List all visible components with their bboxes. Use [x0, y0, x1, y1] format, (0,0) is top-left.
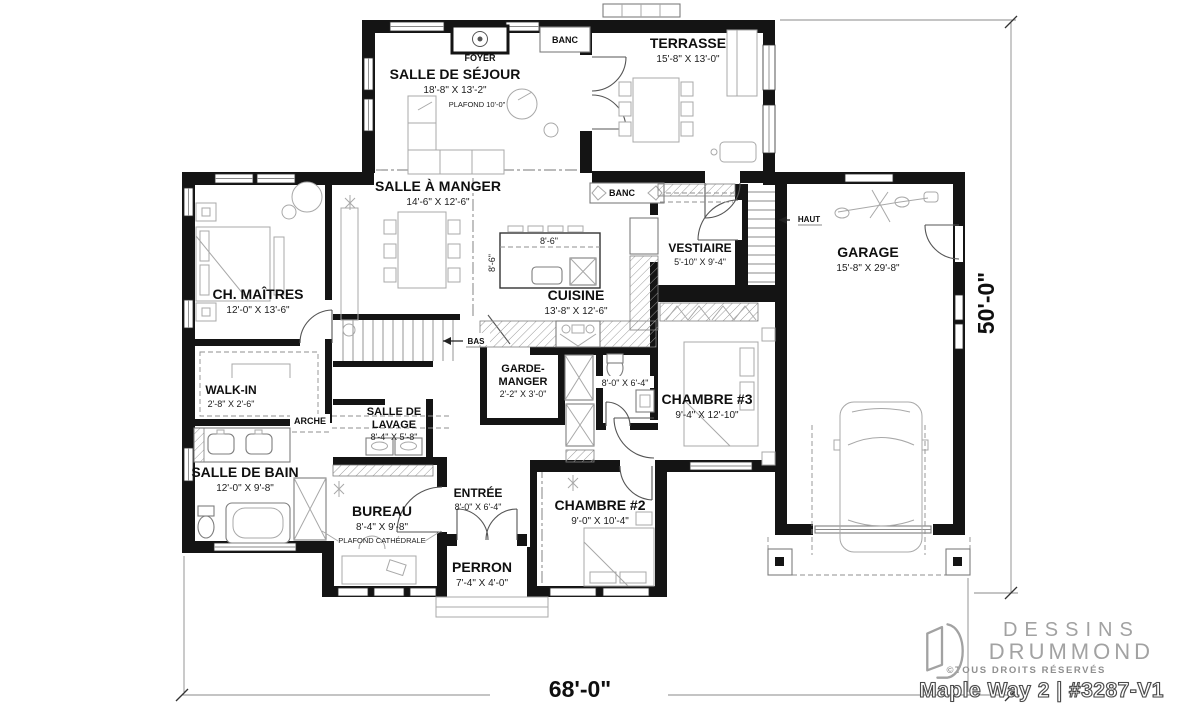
- island-width-label: 8'-6": [540, 236, 558, 246]
- room-label-perron: PERRON: [452, 559, 512, 575]
- room-label-chambre3: CHAMBRE #3: [661, 391, 752, 407]
- chambre2-furniture: [568, 475, 654, 586]
- room-dims-entree: 8'-0" X 6'-4": [455, 502, 502, 512]
- room-dims-perron: 7'-4" X 4'-0": [456, 578, 509, 589]
- room-note-bureau: PLAFOND CATHÉDRALE: [338, 536, 425, 545]
- label-arche: ARCHE: [294, 416, 326, 426]
- room-dims-maitres: 12'-0" X 13'-6": [226, 305, 290, 316]
- room-label-bureau: BUREAU: [352, 503, 412, 519]
- brand-rights: ©TOUS DROITS RÉSERVÉS: [946, 665, 1106, 676]
- room-dims-garde-manger: 2'-2" X 3'-0": [500, 389, 547, 399]
- driveway: [768, 537, 970, 575]
- room-label-garde-manger-1: GARDE-: [501, 363, 545, 375]
- room-label-maitres: CH. MAÎTRES: [213, 285, 304, 302]
- room-dims-terrasse: 15'-8" X 13'-0": [656, 54, 720, 65]
- room-label-bain: SALLE DE BAIN: [191, 464, 298, 480]
- room-dims-walkin: 2'-8" X 2'-6": [208, 399, 255, 409]
- room-label-garde-manger-2: MANGER: [499, 376, 548, 388]
- room-dims-chambre2: 9'-0" X 10'-4": [571, 516, 629, 527]
- brand-name-line1: DESSINS: [1003, 620, 1140, 640]
- room-dims-cuisine: 13'-8" X 12'-6": [544, 306, 608, 317]
- island-depth-label: 8'-6": [487, 254, 497, 272]
- chambre3-furniture: [660, 303, 775, 465]
- label-banc-terrasse: BANC: [609, 188, 635, 198]
- label-foyer: FOYER: [464, 53, 496, 63]
- room-dims-bain: 12'-0" X 9'-8": [216, 483, 274, 494]
- room-dims-bureau: 8'-4" X 9'-8": [356, 522, 409, 533]
- room-dims-chambre3: 9'-4" X 12'-10": [675, 410, 739, 421]
- room-label-cuisine: CUISINE: [548, 287, 605, 303]
- room-note-sejour: PLAFOND 10'-0": [449, 100, 506, 109]
- floor-plan-drawing: SALLE DE SÉJOUR 18'-8" X 13'-2" PLAFOND …: [0, 0, 1200, 711]
- room-label-sejour: SALLE DE SÉJOUR: [390, 66, 521, 82]
- kitchen: [480, 218, 658, 347]
- room-label-entree: ENTRÉE: [454, 485, 503, 500]
- fireplace: [452, 26, 508, 53]
- stairs-down: [343, 320, 463, 361]
- room-label-chambre2: CHAMBRE #2: [554, 497, 645, 513]
- brand-wordmark: DESSINS DRUMMOND: [989, 620, 1154, 663]
- label-banc-haut: BANC: [552, 35, 578, 45]
- room-dims-manger: 14'-6" X 12'-6": [406, 197, 470, 208]
- room-dims-sejour: 18'-8" X 13'-2": [423, 85, 487, 96]
- room-label-walkin: WALK-IN: [205, 383, 256, 397]
- room-label-manger: SALLE À MANGER: [375, 178, 501, 194]
- label-bas: BAS: [468, 337, 486, 346]
- room-label-garage: GARAGE: [837, 244, 898, 260]
- room-label-lavage-2: LAVAGE: [372, 419, 416, 431]
- stairs-up: [748, 192, 797, 282]
- brand-name-line2: DRUMMOND: [989, 640, 1154, 663]
- room-dims-garage: 15'-8" X 29'-8": [836, 263, 900, 274]
- perron-steps: [436, 597, 548, 617]
- dimension-width: 68'-0": [549, 676, 611, 702]
- garage-door: [815, 526, 931, 533]
- label-haut: HAUT: [798, 215, 820, 224]
- room-dims-bain2: 8'-0" X 6'-4": [602, 378, 649, 388]
- dimension-depth: 50'-0": [973, 272, 999, 334]
- room-dims-lavage: 8'-4" X 5'-8": [371, 432, 418, 442]
- plan-title: Maple Way 2 | #3287-V1: [919, 679, 1164, 703]
- vestiaire-closet: [658, 184, 735, 202]
- pantry-closets: [565, 355, 594, 462]
- room-label-vestiaire: VESTIAIRE: [668, 241, 731, 255]
- room-dims-vestiaire: 5'-10" X 9'-4": [674, 257, 726, 267]
- room-label-terrasse: TERRASSE: [650, 35, 726, 51]
- brand-block: DESSINS DRUMMOND ©TOUS DROITS RÉSERVÉS M…: [919, 620, 1164, 703]
- floor-plan-page: SALLE DE SÉJOUR 18'-8" X 13'-2" PLAFOND …: [0, 0, 1200, 711]
- room-label-lavage-1: SALLE DE: [367, 406, 421, 418]
